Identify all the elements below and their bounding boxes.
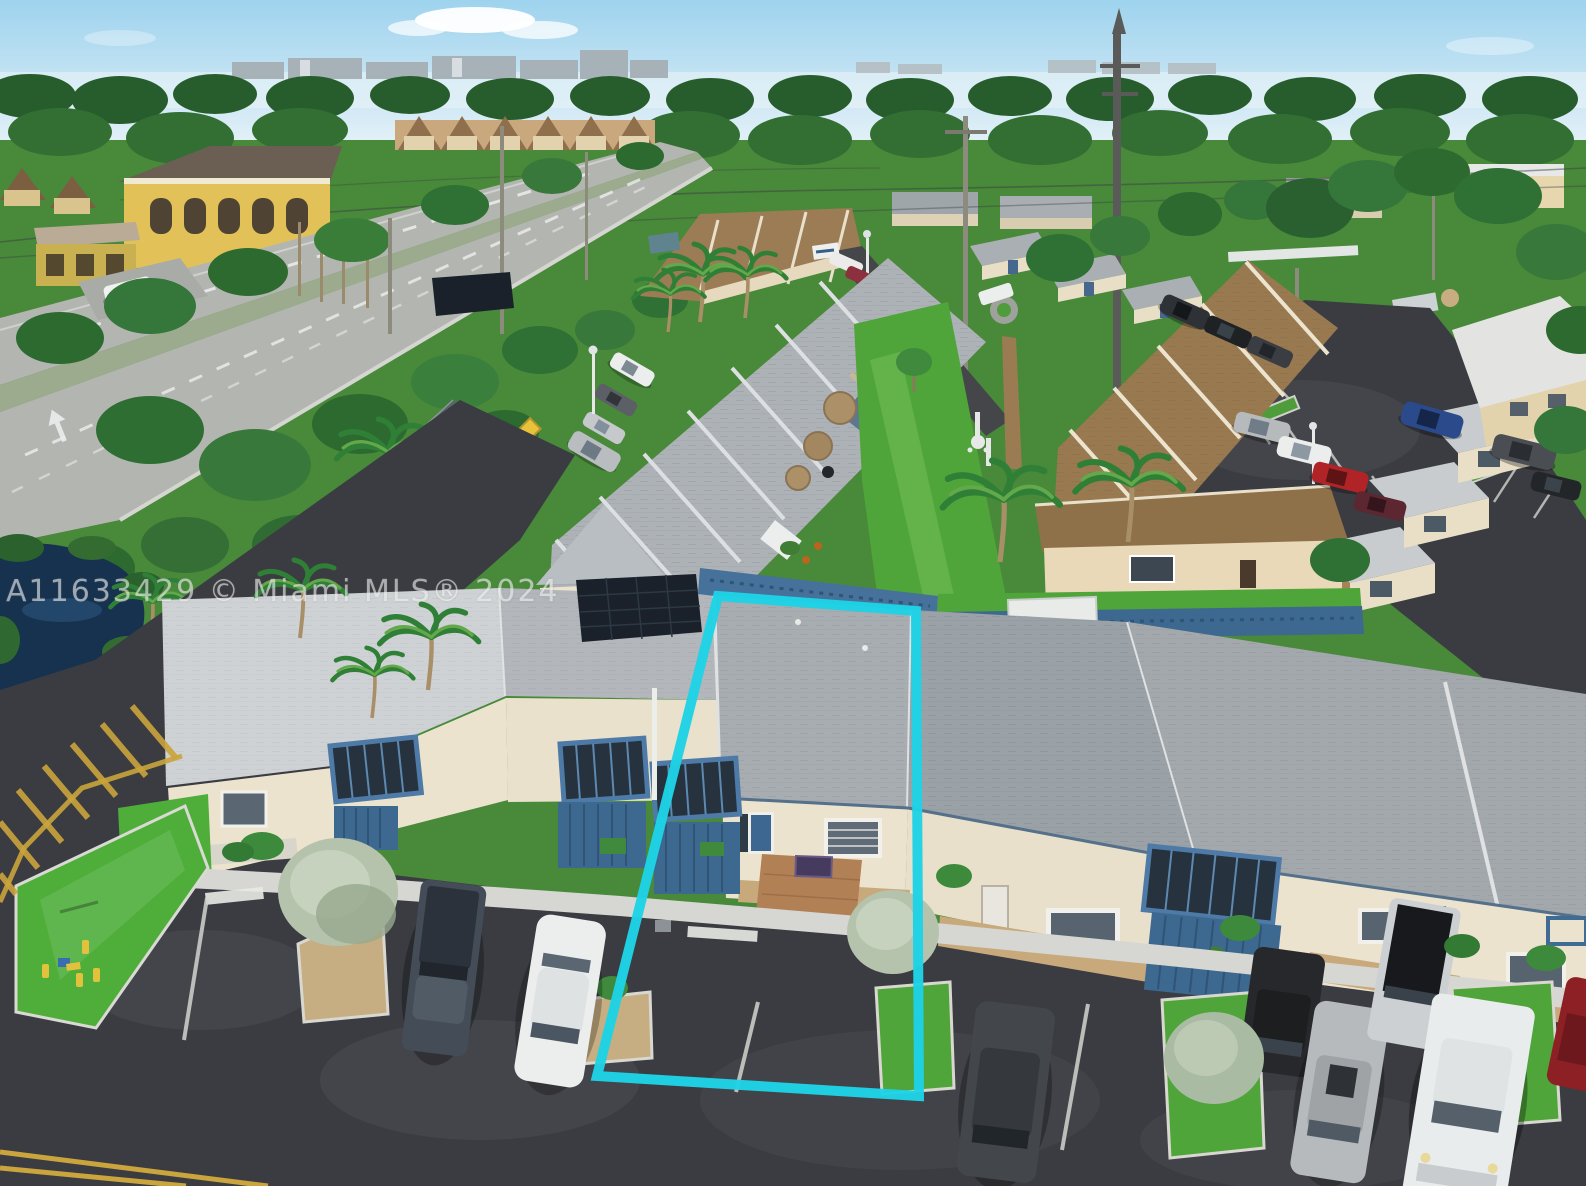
distant-tan-house-row bbox=[395, 116, 656, 150]
blue-pergola-1 bbox=[330, 737, 421, 802]
blue-pergola-4 bbox=[1143, 846, 1279, 923]
aerial-listing-photo: A11633429 © Miami MLS® 2024 bbox=[0, 0, 1586, 1186]
scene bbox=[0, 0, 1586, 1186]
blue-fence-2 bbox=[558, 802, 646, 868]
utility-box bbox=[655, 920, 671, 932]
subject-front-door bbox=[748, 812, 774, 854]
subject-sidelight bbox=[740, 814, 748, 852]
porch-post bbox=[652, 688, 657, 800]
subject-window bbox=[824, 818, 882, 858]
subject-doormat bbox=[795, 856, 832, 877]
blue-pergola-2 bbox=[560, 738, 648, 802]
